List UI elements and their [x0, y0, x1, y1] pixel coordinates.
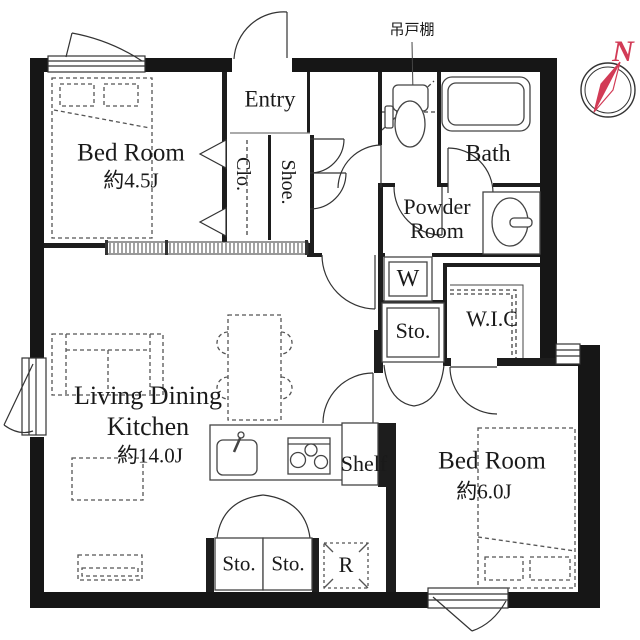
label-refrigerator: R — [339, 554, 354, 576]
label-storage-b2: Sto. — [271, 554, 304, 575]
label-north: N — [612, 37, 634, 67]
compass-icon — [581, 62, 635, 117]
hall-ldk-door — [322, 255, 375, 309]
label-entry: Entry — [244, 88, 295, 111]
tv-board — [78, 555, 142, 580]
floor-plan: Entry Bed Room 約4.5J Clo. Shoe. Bath Pow… — [0, 0, 640, 640]
floor-plan-drawing — [0, 0, 640, 640]
label-powder-line1: Powder — [403, 196, 470, 218]
label-closet: Clo. — [233, 157, 253, 191]
window-ldk-left — [4, 358, 46, 435]
label-shoe: Shoe. — [278, 160, 298, 205]
window-bedroom1-top — [48, 33, 145, 72]
label-bedroom2-size: 約6.0J — [456, 482, 511, 503]
label-ldk-line2: Kitchen — [107, 414, 189, 440]
window-right-step — [556, 344, 580, 364]
washbasin — [483, 192, 540, 254]
label-washer: W — [397, 267, 420, 291]
storage-mid-double-doors — [384, 365, 444, 406]
dining-table — [217, 315, 292, 420]
label-storage-b1: Sto. — [222, 554, 255, 575]
kitchen-counter — [210, 425, 343, 480]
entry-door — [234, 12, 287, 59]
label-storage-mid: Sto. — [396, 320, 431, 342]
label-hanging-cupboard: 吊戸棚 — [389, 24, 434, 39]
bedroom2-door — [450, 367, 497, 414]
label-ldk-size: 約14.0J — [117, 446, 183, 467]
label-wic: W.I.C — [466, 308, 518, 330]
label-ldk-line1: Living Dining — [74, 383, 222, 409]
ldk-hall-lower-door — [323, 373, 373, 423]
label-bath: Bath — [465, 142, 510, 166]
label-bedroom2: Bed Room — [438, 449, 546, 474]
sliding-door-strip — [105, 240, 308, 255]
label-shelf: Shelf — [341, 453, 387, 475]
label-bedroom1-size: 約4.5J — [103, 171, 158, 192]
label-bedroom1: Bed Room — [77, 141, 185, 166]
label-powder-line2: Room — [410, 220, 464, 242]
storage-bottom-double-doors — [217, 495, 310, 538]
window-bedroom2-bottom — [428, 588, 508, 631]
toilet — [382, 42, 436, 147]
bathtub — [442, 77, 530, 131]
